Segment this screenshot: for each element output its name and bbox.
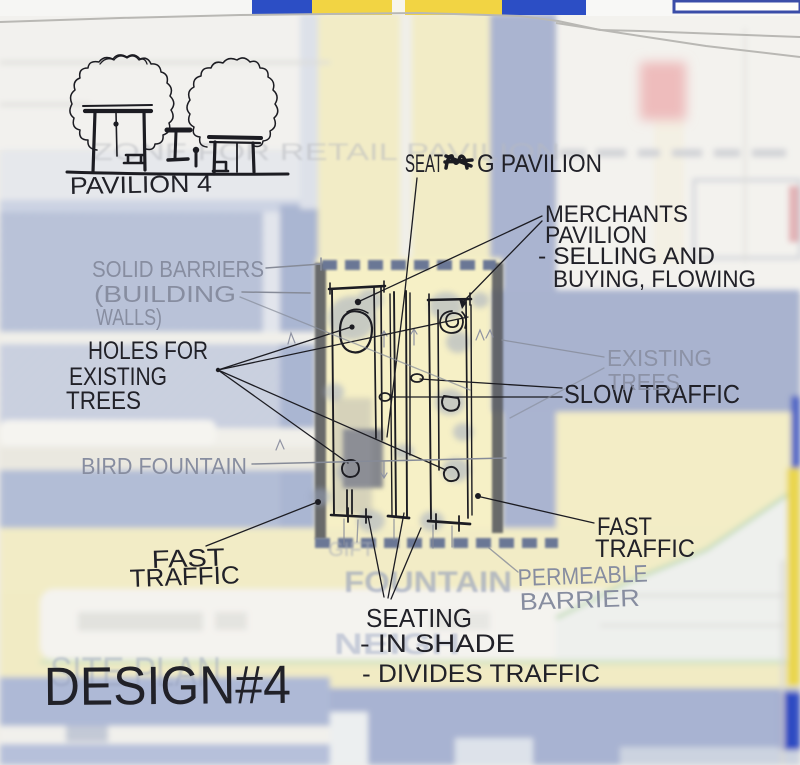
svg-text:TREES: TREES [66,387,141,415]
svg-text:TRAFFIC: TRAFFIC [129,561,240,593]
svg-text:- IN SHADE: - IN SHADE [360,630,515,658]
svg-text:- DIVIDES TRAFFIC: - DIVIDES TRAFFIC [362,660,600,688]
svg-text:FOUNTAIN: FOUNTAIN [344,566,512,599]
svg-text:G PAVILION: G PAVILION [477,150,602,178]
svg-text:EXISTING: EXISTING [607,345,712,371]
svg-text:DESIGN#4: DESIGN#4 [44,655,292,717]
svg-text:BUYING, FLOWING: BUYING, FLOWING [553,266,756,293]
svg-text:PAVILION 4: PAVILION 4 [70,171,212,200]
svg-text:BARRIER: BARRIER [519,585,640,616]
svg-text:SEAT: SEAT [405,150,443,178]
svg-text:HOLES FOR: HOLES FOR [88,337,208,365]
svg-text:WALLS): WALLS) [96,304,162,330]
svg-text:SOLID BARRIERS: SOLID BARRIERS [92,256,264,282]
svg-text:SEATING: SEATING [366,603,472,633]
svg-text:GIFT: GIFT [328,539,374,561]
svg-text:TREES: TREES [608,369,680,395]
svg-text:TRAFFIC: TRAFFIC [595,535,695,563]
svg-text:BIRD FOUNTAIN: BIRD FOUNTAIN [81,453,247,479]
